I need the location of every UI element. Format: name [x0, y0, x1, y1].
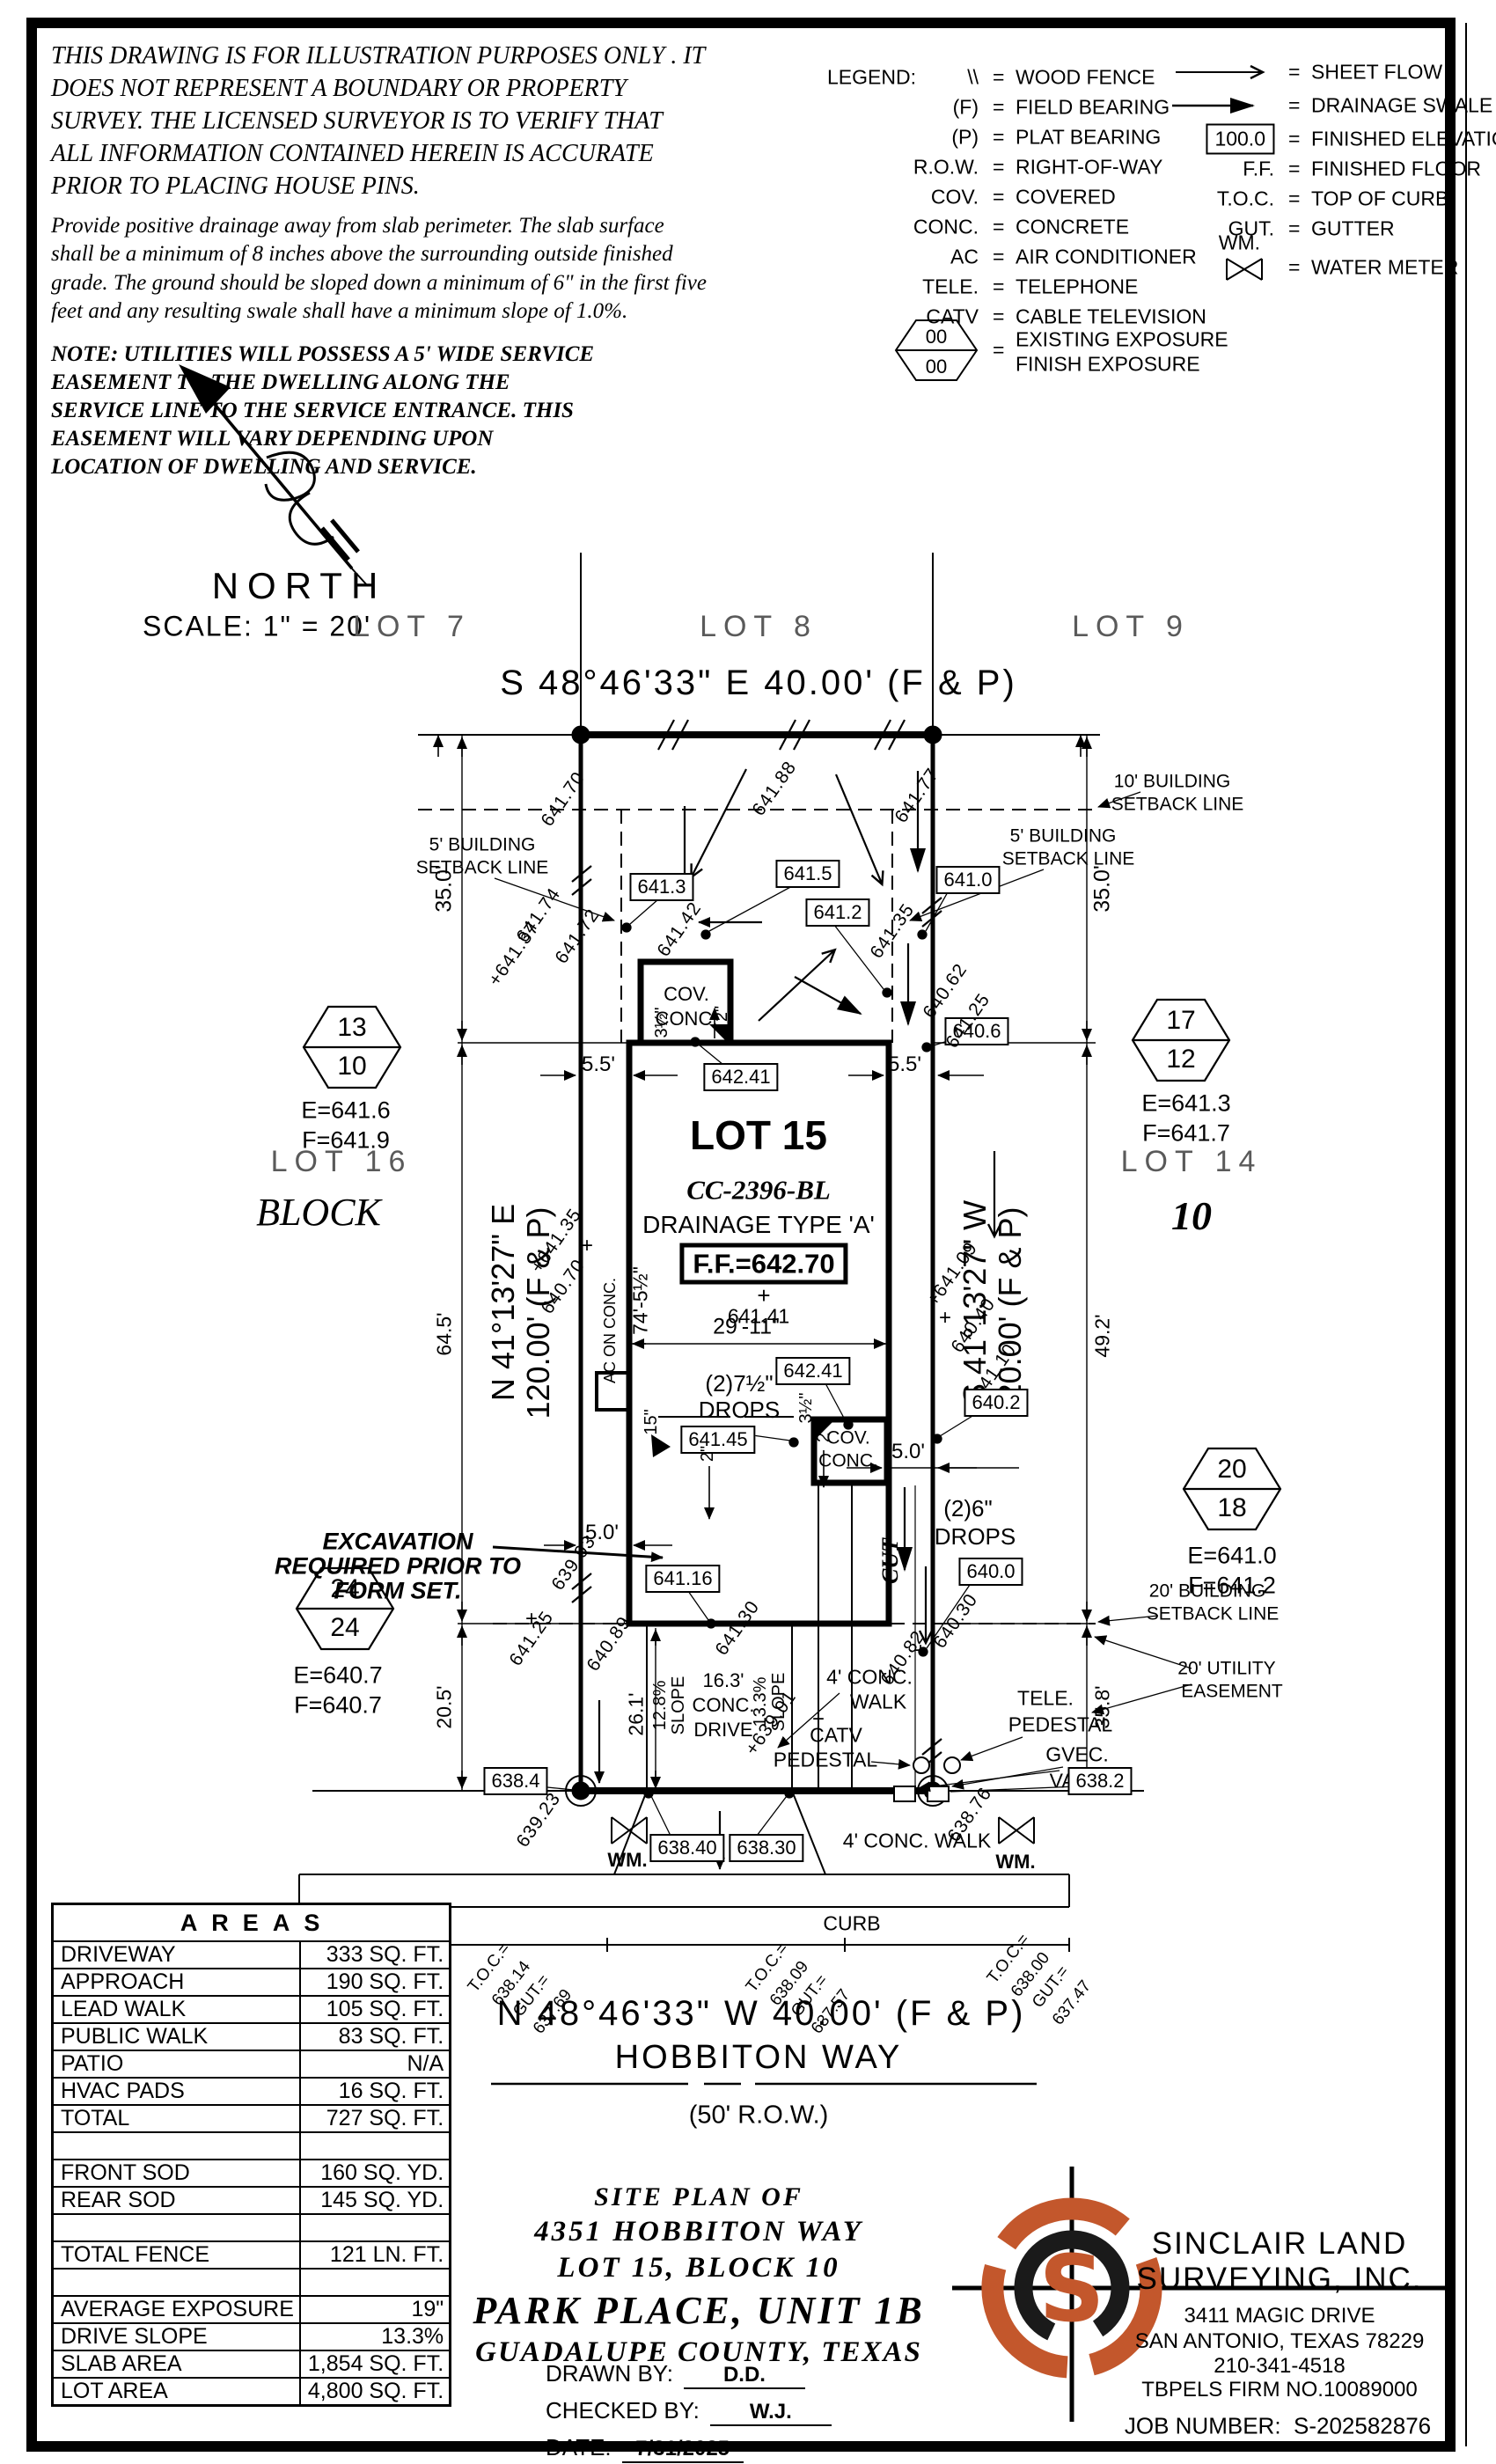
- hex-top: 17: [1166, 1008, 1195, 1034]
- elev-box: 642.41: [775, 1357, 850, 1385]
- areas-label: FRONT SOD: [53, 2160, 300, 2187]
- lot9-label: LOT 9: [1072, 612, 1190, 642]
- hex-bottom: 18: [1217, 1495, 1246, 1522]
- lot15-label: LOT 15: [690, 1115, 827, 1155]
- slope-label: SLOPE: [770, 1673, 788, 1732]
- legend-symbol: (P): [951, 126, 979, 150]
- exposure: F=641.7: [1142, 1122, 1230, 1146]
- easement-label: 20' UTILITY: [1177, 1660, 1275, 1678]
- drawn-by-label: DRAWN BY:: [546, 2360, 673, 2387]
- legend-eq: =: [993, 96, 1004, 120]
- areas-row: [53, 2214, 451, 2241]
- legend-desc: CONCRETE: [1016, 216, 1129, 239]
- checked-by-label: CHECKED BY:: [546, 2397, 700, 2424]
- legend-eq: =: [1288, 94, 1300, 118]
- setback-10-label: SETBACK LINE: [1111, 796, 1244, 814]
- walk-label: 4' CONC. WALK: [843, 1831, 991, 1852]
- date-label: DATE:: [546, 2434, 612, 2460]
- hex-bottom: 10: [337, 1053, 366, 1080]
- dim: 2": [713, 1006, 730, 1022]
- areas-row: APPROACH190 SQ. FT.: [53, 1969, 451, 1996]
- scale-label: SCALE: 1" = 20': [143, 611, 371, 643]
- legend-eq: =: [993, 275, 1004, 299]
- water-meter-icon: [999, 1817, 1034, 1844]
- legend-eq: =: [1288, 61, 1300, 84]
- title-line: SITE PLAN OF: [458, 2182, 940, 2212]
- cov-conc-front: CONC.: [818, 1452, 878, 1470]
- logo-letter: S: [1039, 2235, 1105, 2343]
- legend-symbol: CATV: [926, 305, 979, 329]
- excavation-note: REQUIRED PRIOR TO: [275, 1555, 521, 1579]
- legend-eq: =: [993, 126, 1004, 150]
- plus-mark: +: [757, 1284, 770, 1307]
- site-plan-sheet: 00 00: [0, 0, 1496, 2464]
- areas-row: DRIVEWAY333 SQ. FT.: [53, 1941, 451, 1969]
- elev-box: 638.2: [1067, 1767, 1132, 1795]
- areas-label: [53, 2132, 300, 2160]
- setback-20-label: 20' BUILDING: [1149, 1582, 1265, 1601]
- svg-text:00: 00: [926, 356, 947, 378]
- legend-symbol: CONC.: [913, 216, 979, 239]
- exposure-hex-icon: 00 00: [896, 320, 977, 380]
- legend-desc: EXISTING EXPOSURE: [1016, 328, 1228, 352]
- wm-label: WM.: [607, 1851, 647, 1870]
- areas-value: 333 SQ. FT.: [300, 1941, 451, 1969]
- areas-value: 160 SQ. YD.: [300, 2160, 451, 2187]
- drops-label: (2)7½": [705, 1372, 773, 1395]
- areas-value: 83 SQ. FT.: [300, 2023, 451, 2050]
- legend-desc: GUTTER: [1311, 217, 1395, 241]
- setback-10-label: 10' BUILDING: [1114, 773, 1230, 791]
- legend-symbol: T.O.C.: [1217, 187, 1274, 211]
- legend-eq: =: [993, 246, 1004, 269]
- legend-title: LEGEND:: [827, 66, 916, 90]
- date-value: 7/31/2025: [622, 2437, 744, 2463]
- legend-desc: DRAINAGE SWALE: [1311, 94, 1492, 118]
- elev-box: 641.3: [629, 873, 693, 901]
- areas-label: LOT AREA: [53, 2378, 300, 2406]
- areas-value: 145 SQ. YD.: [300, 2187, 451, 2214]
- walk-label: 4' CONC.: [826, 1668, 913, 1688]
- areas-label: TOTAL FENCE: [53, 2241, 300, 2269]
- legend-symbol: F.F.: [1243, 158, 1274, 181]
- drive-label: CONC.: [693, 1696, 755, 1715]
- lot16-label: LOT 16: [271, 1147, 413, 1177]
- legend-symbol: (F): [953, 96, 979, 120]
- legend-symbol: AC: [950, 246, 979, 269]
- areas-row: LEAD WALK105 SQ. FT.: [53, 1996, 451, 2023]
- finished-floor: F.F.=642.70: [679, 1243, 847, 1285]
- legend-symbol: WM.: [1219, 231, 1260, 255]
- drops-label: (2)6": [943, 1497, 992, 1520]
- plus-mark: +: [939, 1308, 951, 1329]
- elev-box: 641.0: [935, 866, 1000, 894]
- areas-value: 121 LN. FT.: [300, 2241, 451, 2269]
- areas-row: FRONT SOD160 SQ. YD.: [53, 2160, 451, 2187]
- elev-box: 641.16: [645, 1565, 720, 1593]
- disclaimer-notes: THIS DRAWING IS FOR ILLUSTRATION PURPOSE…: [51, 40, 707, 481]
- legend-desc: SHEET FLOW: [1311, 61, 1442, 84]
- ac-label: AC ON CONC.: [602, 1278, 618, 1383]
- plus-mark: +: [812, 1709, 825, 1730]
- signature-block: DRAWN BY:D.D. CHECKED BY:W.J. DATE:7/31/…: [546, 2360, 832, 2464]
- legend-eq: =: [993, 156, 1004, 180]
- legend-symbol: 100.0: [1206, 124, 1274, 155]
- dim: 5.5': [888, 1054, 921, 1075]
- dim: 2": [699, 1446, 716, 1462]
- catv-label: PEDESTAL: [774, 1750, 877, 1771]
- plus-mark: +: [581, 1236, 593, 1257]
- legend-eq: =: [1288, 128, 1300, 151]
- areas-label: APPROACH: [53, 1969, 300, 1996]
- legend-eq: =: [993, 216, 1004, 239]
- areas-value: 190 SQ. FT.: [300, 1969, 451, 1996]
- wm-label: WM.: [995, 1852, 1035, 1872]
- block-label: BLOCK: [256, 1193, 381, 1232]
- legend-symbol: COV.: [931, 186, 979, 209]
- legend-eq: =: [993, 339, 1004, 363]
- title-block: SITE PLAN OF 4351 HOBBITON WAY LOT 15, B…: [458, 2182, 940, 2369]
- legend-desc: PLAT BEARING: [1016, 126, 1161, 150]
- north-label: NORTH: [212, 565, 387, 607]
- drainage-type: DRAINAGE TYPE 'A': [642, 1213, 875, 1237]
- legend-symbol: \\: [967, 66, 979, 90]
- legend-eq: =: [1288, 217, 1300, 241]
- setback-5-left-label: 5' BUILDING: [429, 836, 536, 854]
- areas-value: 13.3%: [300, 2323, 451, 2350]
- legend-desc: CABLE TELEVISION: [1016, 305, 1206, 329]
- areas-row: PUBLIC WALK83 SQ. FT.: [53, 2023, 451, 2050]
- setback-20-label: SETBACK LINE: [1147, 1605, 1280, 1624]
- tele-label: TELE.: [1017, 1689, 1074, 1709]
- water-meter-icon: [1227, 259, 1262, 280]
- areas-row: AVERAGE EXPOSURE19": [53, 2296, 451, 2323]
- areas-label: LEAD WALK: [53, 1996, 300, 2023]
- cut-label: CUT: [879, 1538, 902, 1584]
- elev-box: 640.0: [958, 1558, 1023, 1586]
- svg-text:00: 00: [926, 326, 947, 348]
- tele-pedestal-icon: [944, 1757, 960, 1773]
- legend-desc: FINISHED FLOOR: [1311, 158, 1481, 181]
- elev-box: 638.30: [729, 1834, 803, 1862]
- gvec-label: GVEC.: [1045, 1745, 1109, 1765]
- catv-pedestal-icon: [913, 1757, 929, 1773]
- areas-row: DRIVE SLOPE13.3%: [53, 2323, 451, 2350]
- elev-box: 638.4: [483, 1767, 547, 1795]
- dim: 5.0': [585, 1522, 619, 1544]
- areas-row: HVAC PADS16 SQ. FT.: [53, 2078, 451, 2105]
- legend-desc: TOP OF CURB: [1311, 187, 1448, 211]
- firm-number: TBPELS FIRM NO.10089000: [1141, 2378, 1417, 2402]
- dim: 74'-5½": [631, 1266, 651, 1335]
- legend-eq: =: [1288, 187, 1300, 211]
- legend-symbol: R.O.W.: [913, 156, 979, 180]
- dim: 29'-11": [713, 1316, 780, 1338]
- dim: 64.5': [435, 1312, 455, 1355]
- areas-value: N/A: [300, 2050, 451, 2078]
- slope-label: 12.8%: [651, 1681, 669, 1731]
- slope-label: SLOPE: [670, 1676, 687, 1735]
- areas-value: [300, 2214, 451, 2241]
- setback-5-right-label: 5' BUILDING: [1010, 827, 1117, 846]
- areas-label: AVERAGE EXPOSURE: [53, 2296, 300, 2323]
- areas-value: 105 SQ. FT.: [300, 1996, 451, 2023]
- dim: 35.0': [434, 865, 456, 912]
- legend-desc: WATER METER: [1311, 256, 1458, 280]
- elev-box: 641.45: [680, 1426, 755, 1454]
- legend-desc: WOOD FENCE: [1016, 66, 1155, 90]
- drive-label: DRIVE: [693, 1720, 752, 1740]
- areas-label: [53, 2269, 300, 2296]
- lot8-label: LOT 8: [700, 612, 818, 642]
- illustration-note: THIS DRAWING IS FOR ILLUSTRATION PURPOSE…: [51, 40, 707, 203]
- legend-desc: TELEPHONE: [1016, 275, 1138, 299]
- legend-eq: =: [993, 305, 1004, 329]
- legend-eq: =: [993, 186, 1004, 209]
- bearing-east: S 41°13'27" W: [959, 1200, 991, 1404]
- areas-label: REAR SOD: [53, 2187, 300, 2214]
- setback-5-right-label: SETBACK LINE: [1002, 850, 1135, 869]
- areas-row: SLAB AREA1,854 SQ. FT.: [53, 2350, 451, 2378]
- title-subdivision: PARK PLACE, UNIT 1B: [458, 2288, 940, 2333]
- bearing-east: 120.00' (F & P): [994, 1207, 1026, 1419]
- plus-mark: +: [914, 1640, 927, 1661]
- excavation-note: FORM SET.: [334, 1580, 462, 1603]
- hex-top: 13: [337, 1015, 366, 1041]
- dim: 49.2': [1093, 1314, 1113, 1357]
- areas-value: [300, 2269, 451, 2296]
- title-address: 4351 HOBBITON WAY: [458, 2216, 940, 2248]
- areas-row: LOT AREA4,800 SQ. FT.: [53, 2378, 451, 2406]
- firm-address: 3411 MAGIC DRIVE: [1184, 2304, 1375, 2328]
- areas-label: PATIO: [53, 2050, 300, 2078]
- hex-top: 20: [1217, 1456, 1246, 1483]
- utility-easement-note: NOTE: UTILITIES WILL POSSESS A 5' WIDE S…: [51, 341, 597, 481]
- cov-conc-rear: COV.: [664, 985, 709, 1004]
- plus-mark: +: [525, 1609, 538, 1630]
- areas-value: 4,800 SQ. FT.: [300, 2378, 451, 2406]
- drops-label: DROPS: [935, 1525, 1016, 1548]
- areas-row: PATION/A: [53, 2050, 451, 2078]
- firm-address: SAN ANTONIO, TEXAS 78229: [1135, 2329, 1425, 2354]
- legend-desc: RIGHT-OF-WAY: [1016, 156, 1162, 180]
- curb-label: CURB: [823, 1914, 880, 1934]
- areas-table: AREAS DRIVEWAY333 SQ. FT.APPROACH190 SQ.…: [51, 1903, 451, 2407]
- areas-value: 727 SQ. FT.: [300, 2105, 451, 2132]
- water-meter-icon: [612, 1817, 647, 1844]
- street-name: HOBBITON WAY: [615, 2041, 903, 2074]
- cov-conc-front: COV.: [826, 1429, 869, 1448]
- dim: 3½": [653, 1008, 671, 1038]
- areas-value: 19": [300, 2296, 451, 2323]
- tele-label: PEDESTAL: [1008, 1715, 1112, 1735]
- areas-value: [300, 2132, 451, 2160]
- elev-box: 641.2: [805, 898, 869, 927]
- lot7-label: LOT 7: [353, 612, 471, 642]
- street-row: (50' R.O.W.): [689, 2103, 829, 2129]
- lot14-label: LOT 14: [1121, 1147, 1263, 1177]
- dim: 3½": [797, 1393, 815, 1424]
- elev-box: 638.40: [649, 1834, 724, 1862]
- areas-label: DRIVE SLOPE: [53, 2323, 300, 2350]
- legend-symbol: TELE.: [922, 275, 979, 299]
- gvec-vault-icon: [928, 1786, 949, 1801]
- areas-row: [53, 2269, 451, 2296]
- elev-box: 640.2: [964, 1389, 1028, 1417]
- bearing-north: S 48°46'33" E 40.00' (F & P): [500, 665, 1017, 700]
- areas-row: REAR SOD145 SQ. YD.: [53, 2187, 451, 2214]
- elev-box: 642.41: [703, 1063, 778, 1091]
- checked-by-value: W.J.: [710, 2400, 832, 2426]
- dim: 5.0': [891, 1441, 925, 1463]
- drawn-by-value: D.D.: [684, 2363, 805, 2389]
- areas-table-title: AREAS: [53, 1904, 451, 1942]
- exposure: F=640.7: [294, 1694, 382, 1718]
- block-number: 10: [1171, 1196, 1212, 1236]
- easement-label: EASEMENT: [1181, 1683, 1283, 1701]
- bearing-west: 120.00' (F & P): [523, 1207, 554, 1419]
- dim: 35.0': [1092, 865, 1114, 912]
- legend-desc: FINISHED ELEVATION: [1311, 128, 1496, 151]
- areas-label: [53, 2214, 300, 2241]
- areas-label: SLAB AREA: [53, 2350, 300, 2378]
- hex-bottom: 12: [1166, 1046, 1195, 1073]
- walk-label: WALK: [850, 1692, 906, 1712]
- bearing-west: N 41°13'27" E: [488, 1204, 519, 1401]
- areas-value: 1,854 SQ. FT.: [300, 2350, 451, 2378]
- areas-label: DRIVEWAY: [53, 1941, 300, 1969]
- dim: 5.5': [582, 1054, 615, 1075]
- gvec-vault-icon: [894, 1786, 915, 1801]
- areas-label: HVAC PADS: [53, 2078, 300, 2105]
- bearing-south: N 48°46'33" W 40.00' (F & P): [497, 1996, 1026, 2031]
- exposure: E=640.7: [293, 1664, 382, 1688]
- dim: 26.1': [627, 1692, 647, 1735]
- legend-desc: FIELD BEARING: [1016, 96, 1170, 120]
- legend-eq: =: [993, 66, 1004, 90]
- legend-eq: =: [1288, 256, 1300, 280]
- drops-label: DROPS: [699, 1398, 780, 1421]
- areas-row: [53, 2132, 451, 2160]
- areas-value: 16 SQ. FT.: [300, 2078, 451, 2105]
- legend-desc: FINISH EXPOSURE: [1016, 353, 1200, 377]
- areas-label: TOTAL: [53, 2105, 300, 2132]
- areas-label: PUBLIC WALK: [53, 2023, 300, 2050]
- drive-label: 16.3': [702, 1671, 744, 1690]
- drainage-note: Provide positive drainage away from slab…: [51, 212, 707, 326]
- legend-desc: COVERED: [1016, 186, 1116, 209]
- plan-code: CC-2396-BL: [686, 1177, 831, 1204]
- areas-row: TOTAL FENCE121 LN. FT.: [53, 2241, 451, 2269]
- firm-phone: 210-341-4518: [1214, 2354, 1345, 2379]
- legend-desc: AIR CONDITIONER: [1016, 246, 1197, 269]
- title-lot-block: LOT 15, BLOCK 10: [458, 2252, 940, 2284]
- firm-name: SURVEYING, INC.: [1137, 2262, 1423, 2297]
- job-number: JOB NUMBER: S-202582876: [1125, 2413, 1431, 2440]
- exposure: E=641.6: [301, 1099, 390, 1123]
- legend-eq: =: [1288, 158, 1300, 181]
- exposure: E=641.3: [1141, 1092, 1230, 1116]
- firm-name: SINCLAIR LAND: [1152, 2226, 1408, 2262]
- elev-box: 641.5: [775, 860, 840, 888]
- dim: 15": [642, 1409, 660, 1434]
- excavation-note: EXCAVATION: [322, 1530, 473, 1554]
- slope-label: 13.3%: [752, 1677, 769, 1727]
- exposure: E=641.0: [1187, 1544, 1276, 1568]
- areas-row: TOTAL727 SQ. FT.: [53, 2105, 451, 2132]
- hex-bottom: 24: [330, 1615, 359, 1641]
- dim: 20.5': [435, 1685, 455, 1728]
